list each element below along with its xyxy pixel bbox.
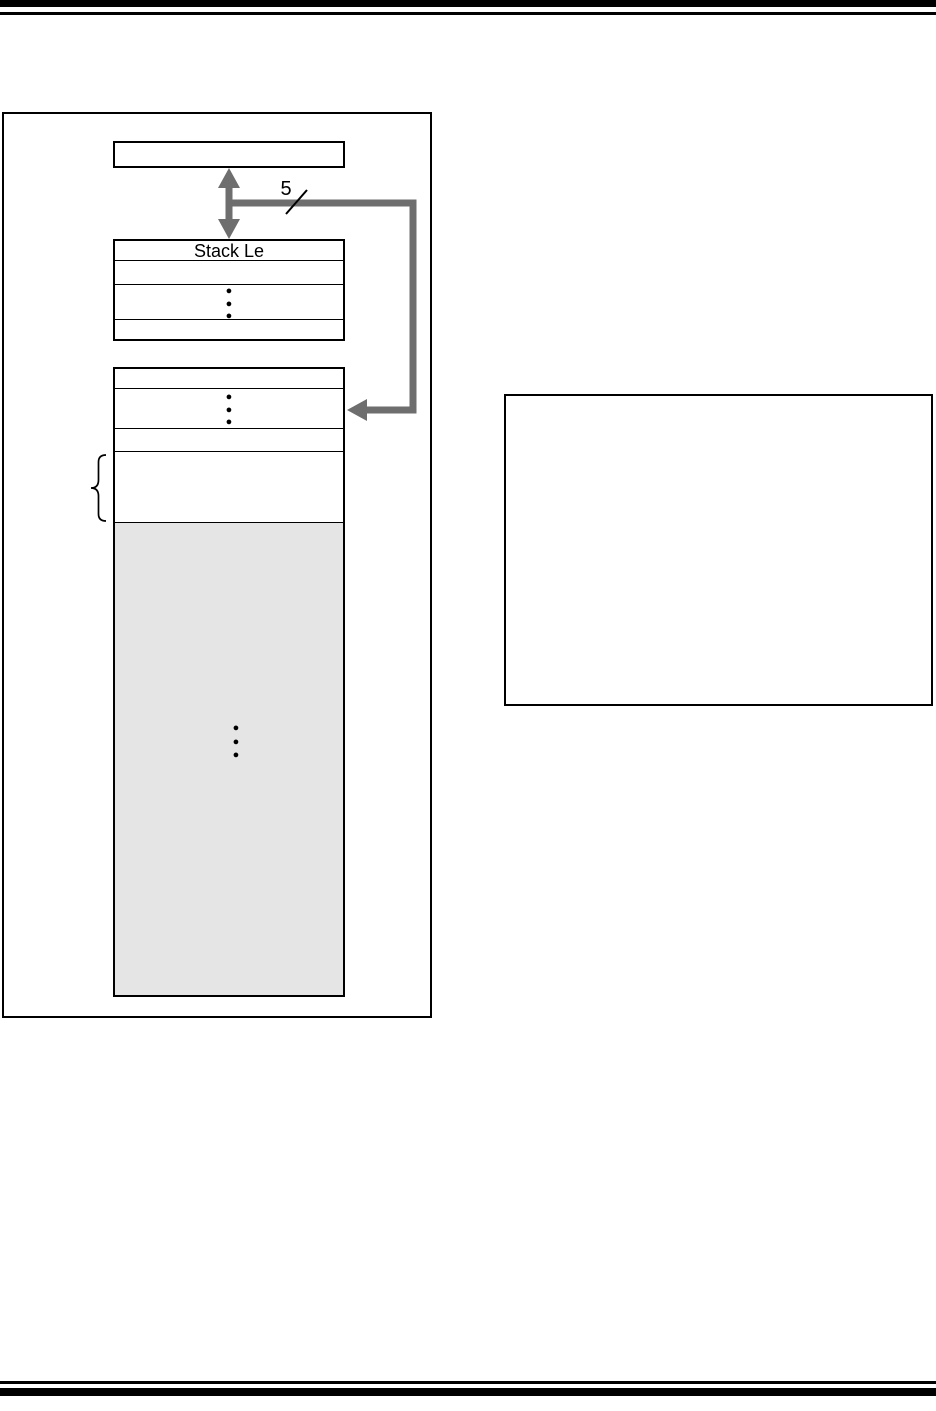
stack-level-row xyxy=(115,320,343,339)
shaded-memory-region: ● ● ● xyxy=(115,523,343,995)
dot-glyph: ● xyxy=(226,404,233,417)
ellipsis-dots: ● ● ● xyxy=(233,722,240,763)
dot-glyph: ● xyxy=(226,416,233,429)
ellipsis-dots: ● ● ● xyxy=(115,389,343,429)
document-page: 5 Stack Le ● ● ● ● ● ● ● ● ● xyxy=(0,0,936,1411)
dot-glyph: ● xyxy=(233,749,240,763)
memory-row xyxy=(115,369,343,389)
stack-level-header: Stack Le xyxy=(115,241,343,261)
bottom-rule-thick xyxy=(0,1388,936,1396)
arrowhead-left-icon xyxy=(347,399,367,421)
arrowhead-down-icon xyxy=(218,219,240,239)
note-box xyxy=(504,394,933,706)
arrowhead-up-icon xyxy=(218,168,240,188)
dot-glyph: ● xyxy=(233,736,240,750)
memory-stack-table: ● ● ● ● ● ● xyxy=(113,367,345,997)
bottom-rule-thin xyxy=(0,1381,936,1384)
dot-glyph: ● xyxy=(226,391,233,404)
dot-glyph: ● xyxy=(226,298,233,311)
stack-level-ellipsis-row: ● ● ● xyxy=(115,285,343,320)
stack-level-row xyxy=(115,261,343,285)
dot-glyph: ● xyxy=(233,722,240,736)
memory-braced-row xyxy=(115,452,343,523)
dot-glyph: ● xyxy=(226,285,233,298)
bus-width-label: 5 xyxy=(274,179,298,199)
stack-level-table: Stack Le ● ● ● xyxy=(113,239,345,341)
ellipsis-dots: ● ● ● xyxy=(115,285,343,323)
memory-row xyxy=(115,429,343,452)
memory-ellipsis-row: ● ● ● xyxy=(115,389,343,429)
left-curly-brace xyxy=(91,455,106,521)
